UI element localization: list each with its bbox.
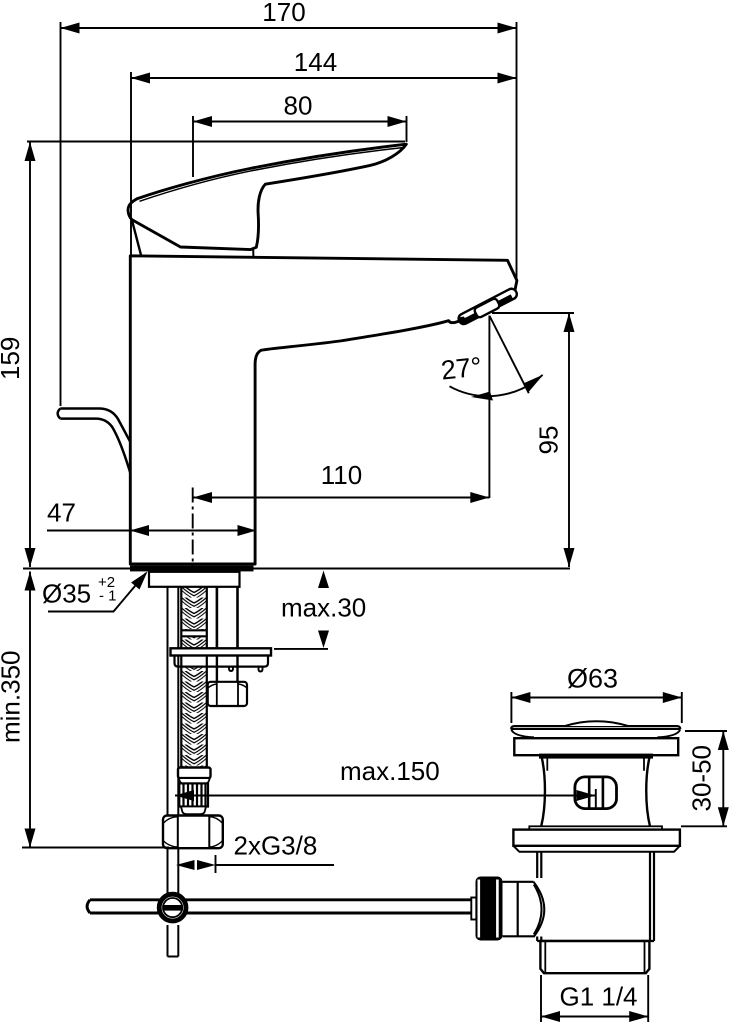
svg-text:- 1: - 1 — [99, 588, 117, 605]
svg-text:144: 144 — [294, 47, 337, 77]
svg-text:110: 110 — [321, 460, 362, 490]
svg-text:159: 159 — [0, 337, 25, 380]
svg-text:30-50: 30-50 — [687, 745, 717, 812]
svg-text:max.150: max.150 — [340, 756, 440, 786]
svg-text:170: 170 — [262, 0, 305, 27]
svg-text:max.30: max.30 — [281, 593, 366, 623]
svg-text:min.350: min.350 — [0, 651, 26, 744]
svg-text:95: 95 — [534, 426, 564, 455]
svg-text:80: 80 — [284, 91, 313, 121]
svg-text:G1 1/4: G1 1/4 — [559, 982, 637, 1012]
svg-text:47: 47 — [47, 498, 76, 528]
svg-text:27°: 27° — [439, 351, 483, 385]
svg-text:2xG3/8: 2xG3/8 — [234, 831, 318, 861]
svg-text:Ø35: Ø35 — [42, 579, 91, 609]
svg-text:Ø63: Ø63 — [567, 664, 618, 694]
